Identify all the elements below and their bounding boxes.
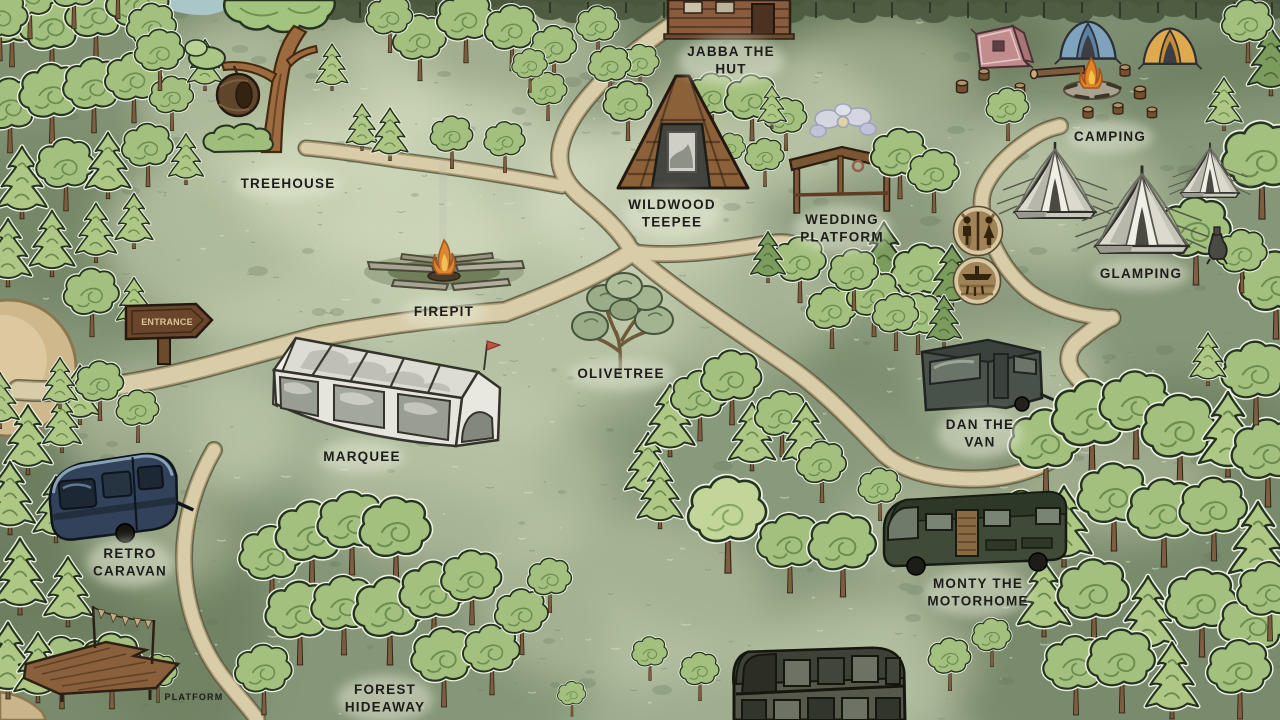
svg-text:GLAMPING: GLAMPING xyxy=(1100,266,1182,281)
svg-text:CARAVAN: CARAVAN xyxy=(93,564,167,579)
svg-text:MARQUEE: MARQUEE xyxy=(323,449,400,464)
svg-text:HUT: HUT xyxy=(715,62,746,77)
svg-text:OLIVETREE: OLIVETREE xyxy=(577,366,664,381)
svg-text:RETRO: RETRO xyxy=(103,546,156,561)
svg-text:MOTORHOME: MOTORHOME xyxy=(927,594,1028,609)
svg-text:VAN: VAN xyxy=(964,435,995,450)
svg-text:ENTRANCE: ENTRANCE xyxy=(141,317,193,327)
svg-text:FOREST: FOREST xyxy=(354,682,416,697)
svg-text:CAMPING: CAMPING xyxy=(1074,129,1146,144)
svg-text:MONTY THE: MONTY THE xyxy=(933,576,1023,591)
svg-text:PLATFORM: PLATFORM xyxy=(165,692,224,702)
svg-text:WEDDING: WEDDING xyxy=(805,212,879,227)
svg-text:JABBA THE: JABBA THE xyxy=(687,44,775,59)
svg-text:PLATFORM: PLATFORM xyxy=(800,230,884,245)
svg-text:HIDEAWAY: HIDEAWAY xyxy=(345,700,425,715)
svg-text:TREEHOUSE: TREEHOUSE xyxy=(241,176,336,191)
svg-text:DAN THE: DAN THE xyxy=(946,417,1014,432)
svg-text:FIREPIT: FIREPIT xyxy=(414,304,474,319)
svg-text:WILDWOOD: WILDWOOD xyxy=(628,197,716,212)
svg-text:TEEPEE: TEEPEE xyxy=(642,215,702,230)
